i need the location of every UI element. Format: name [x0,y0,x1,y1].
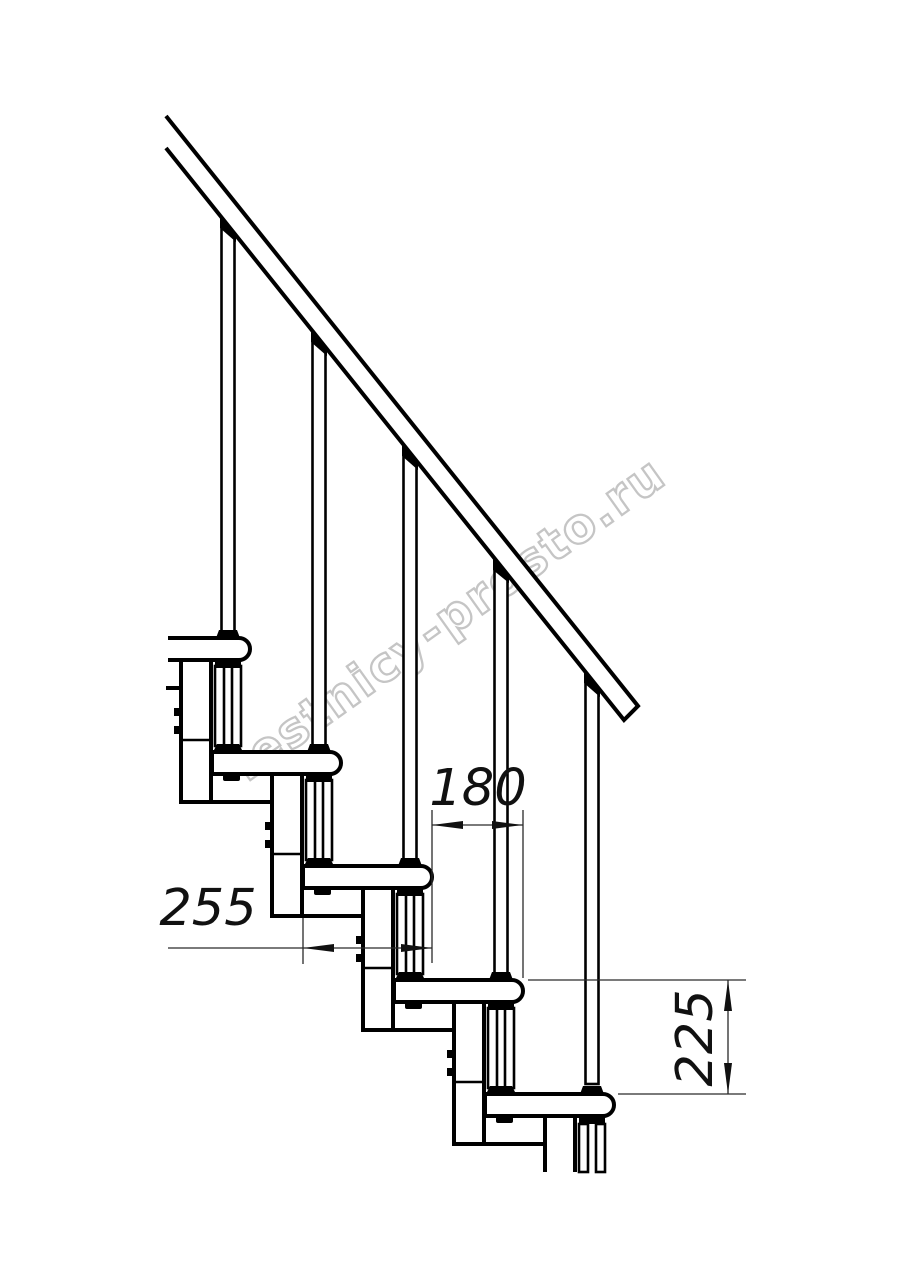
tread-5 [485,1094,614,1116]
stringer-box [363,888,393,1030]
support-rod [596,1124,605,1172]
tread-2 [212,752,341,774]
arrow-down-icon [724,1063,732,1094]
support-rod [215,666,224,746]
arrow-left-icon [303,944,334,952]
arrow-left-icon [432,821,463,829]
baluster-tube [404,457,417,860]
baluster-foot [580,1086,604,1094]
baluster-foot [307,744,331,752]
support-rod [505,1008,514,1088]
dimension-label-255: 255 [159,879,256,938]
tread-bolt-nub [223,774,240,781]
bolt-icon [356,954,364,962]
balusters [216,229,604,1094]
support-rod [397,894,406,974]
tread-bolt-nub [314,888,331,895]
stringer-module-5-cut [545,1116,575,1172]
bolt-icon [174,708,182,716]
stringer-box [272,774,302,916]
support-rods-5-cut [579,1116,605,1172]
baluster-tube [222,229,235,632]
tread-3 [303,866,432,888]
dimension-label-225: 225 [666,989,725,1086]
support-rods-3 [395,888,425,980]
stringer-box [181,660,211,802]
bolt-icon [265,840,273,848]
arrow-up-icon [724,980,732,1011]
support-rods-2 [304,774,334,866]
baluster-5 [580,684,604,1094]
baluster-foot [489,972,513,980]
baluster-1 [216,229,240,638]
support-rod [306,780,315,860]
support-rod [579,1124,588,1172]
bolt-icon [356,936,364,944]
support-rod [488,1008,497,1088]
dimension-label-180: 180 [429,759,526,818]
dimension-step-run-180: 180 [429,759,526,978]
staircase-side-view-drawing: lestnicy-prosto.ru [0,0,914,1280]
support-rod [232,666,241,746]
support-rods-1 [213,660,243,752]
tread-bolt-nub [405,1002,422,1009]
baluster-tube [586,684,599,1084]
dimension-step-height-225: 225 [528,980,746,1094]
support-rods-4 [486,1002,516,1094]
tread-bolt-nub [496,1116,513,1123]
bolt-icon [174,726,182,734]
support-rod [414,894,423,974]
bolt-icon [265,822,273,830]
tread-4 [394,980,523,1002]
staircase-technical-drawing-page: lestnicy-prosto.ru [0,0,914,1280]
stringer-box [454,1002,484,1144]
baluster-tube [313,343,326,746]
tread-1 [168,638,250,660]
baluster-foot [216,630,240,638]
bolt-icon [447,1068,455,1076]
bolt-icon [447,1050,455,1058]
baluster-foot [398,858,422,866]
support-rod [323,780,332,860]
